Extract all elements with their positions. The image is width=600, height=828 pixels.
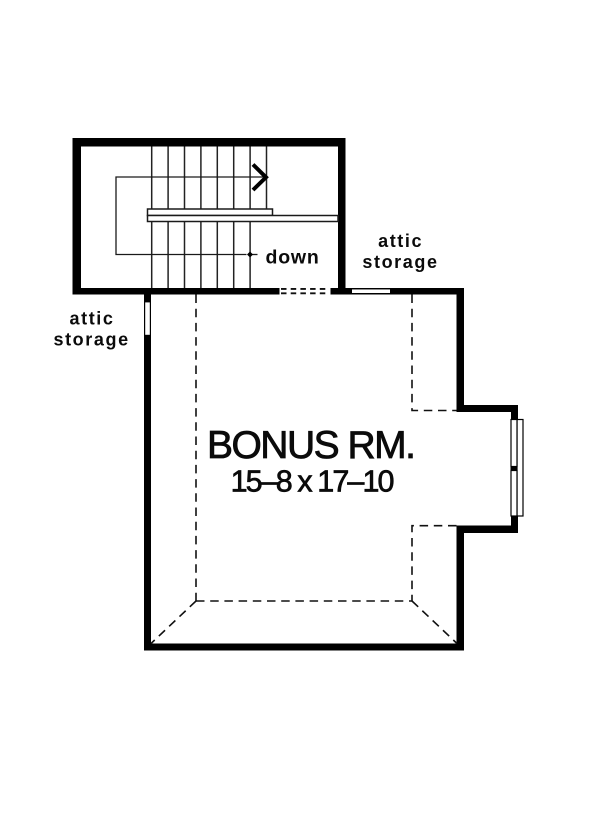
svg-text:BONUS RM.: BONUS RM. (207, 424, 415, 467)
svg-text:storage: storage (53, 330, 129, 350)
svg-text:15–8 x 17–10: 15–8 x 17–10 (231, 465, 394, 499)
svg-text:attic: attic (69, 309, 114, 329)
svg-text:down: down (266, 247, 320, 269)
svg-text:storage: storage (362, 252, 438, 272)
svg-text:attic: attic (378, 231, 423, 251)
